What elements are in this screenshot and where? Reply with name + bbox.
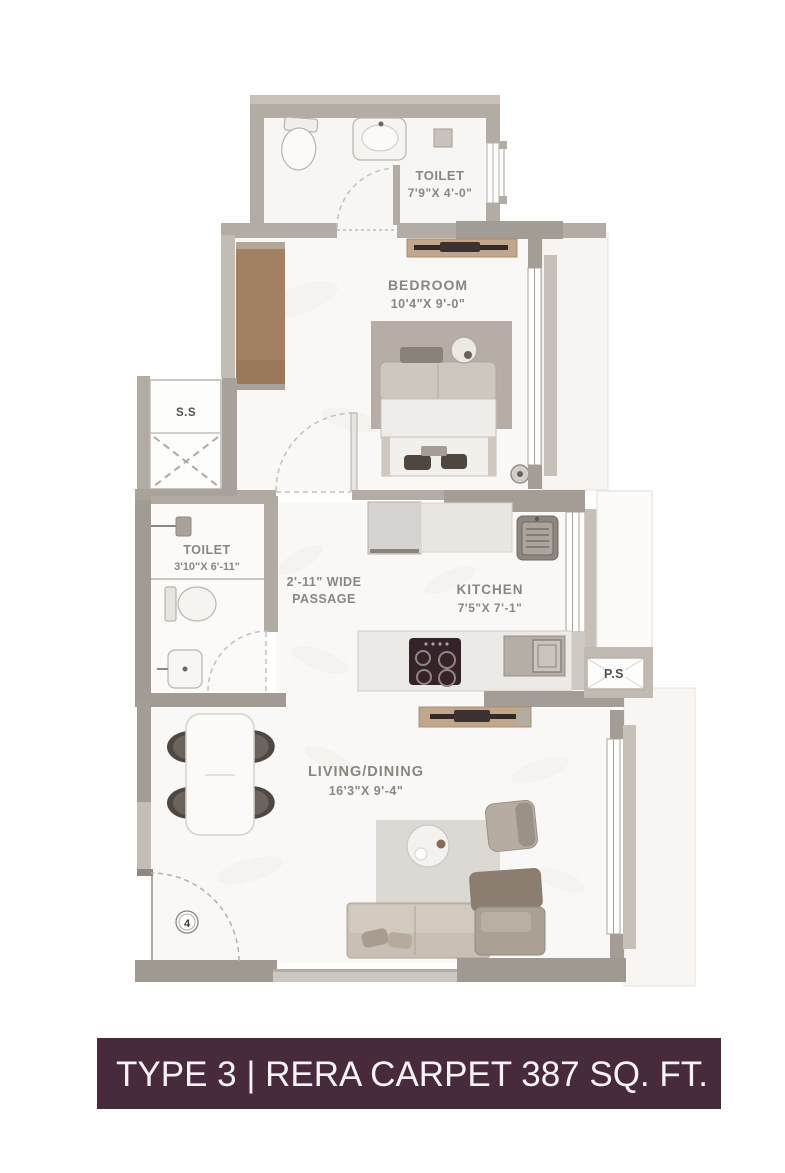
svg-text:3'10"X 6'-11": 3'10"X 6'-11" [174,561,240,573]
svg-text:KITCHEN: KITCHEN [457,582,524,597]
svg-text:TOILET: TOILET [416,168,465,183]
svg-text:TYPE 3 | RERA CARPET 387 SQ. F: TYPE 3 | RERA CARPET 387 SQ. FT. [116,1055,708,1094]
svg-text:4: 4 [184,918,191,930]
svg-text:10'4"X 9'-0": 10'4"X 9'-0" [391,297,466,311]
svg-text:16'3"X 9'-4": 16'3"X 9'-4" [329,784,404,798]
svg-text:TOILET: TOILET [183,543,230,557]
svg-text:2'-11" WIDE: 2'-11" WIDE [287,575,362,589]
svg-text:7'5"X 7'-1": 7'5"X 7'-1" [458,601,523,615]
svg-text:P.S: P.S [604,667,624,681]
svg-text:S.S: S.S [176,407,196,419]
svg-text:BEDROOM: BEDROOM [388,277,468,293]
svg-text:7'9"X 4'-0": 7'9"X 4'-0" [408,186,473,200]
svg-text:LIVING/DINING: LIVING/DINING [308,764,424,780]
svg-text:PASSAGE: PASSAGE [292,592,356,606]
